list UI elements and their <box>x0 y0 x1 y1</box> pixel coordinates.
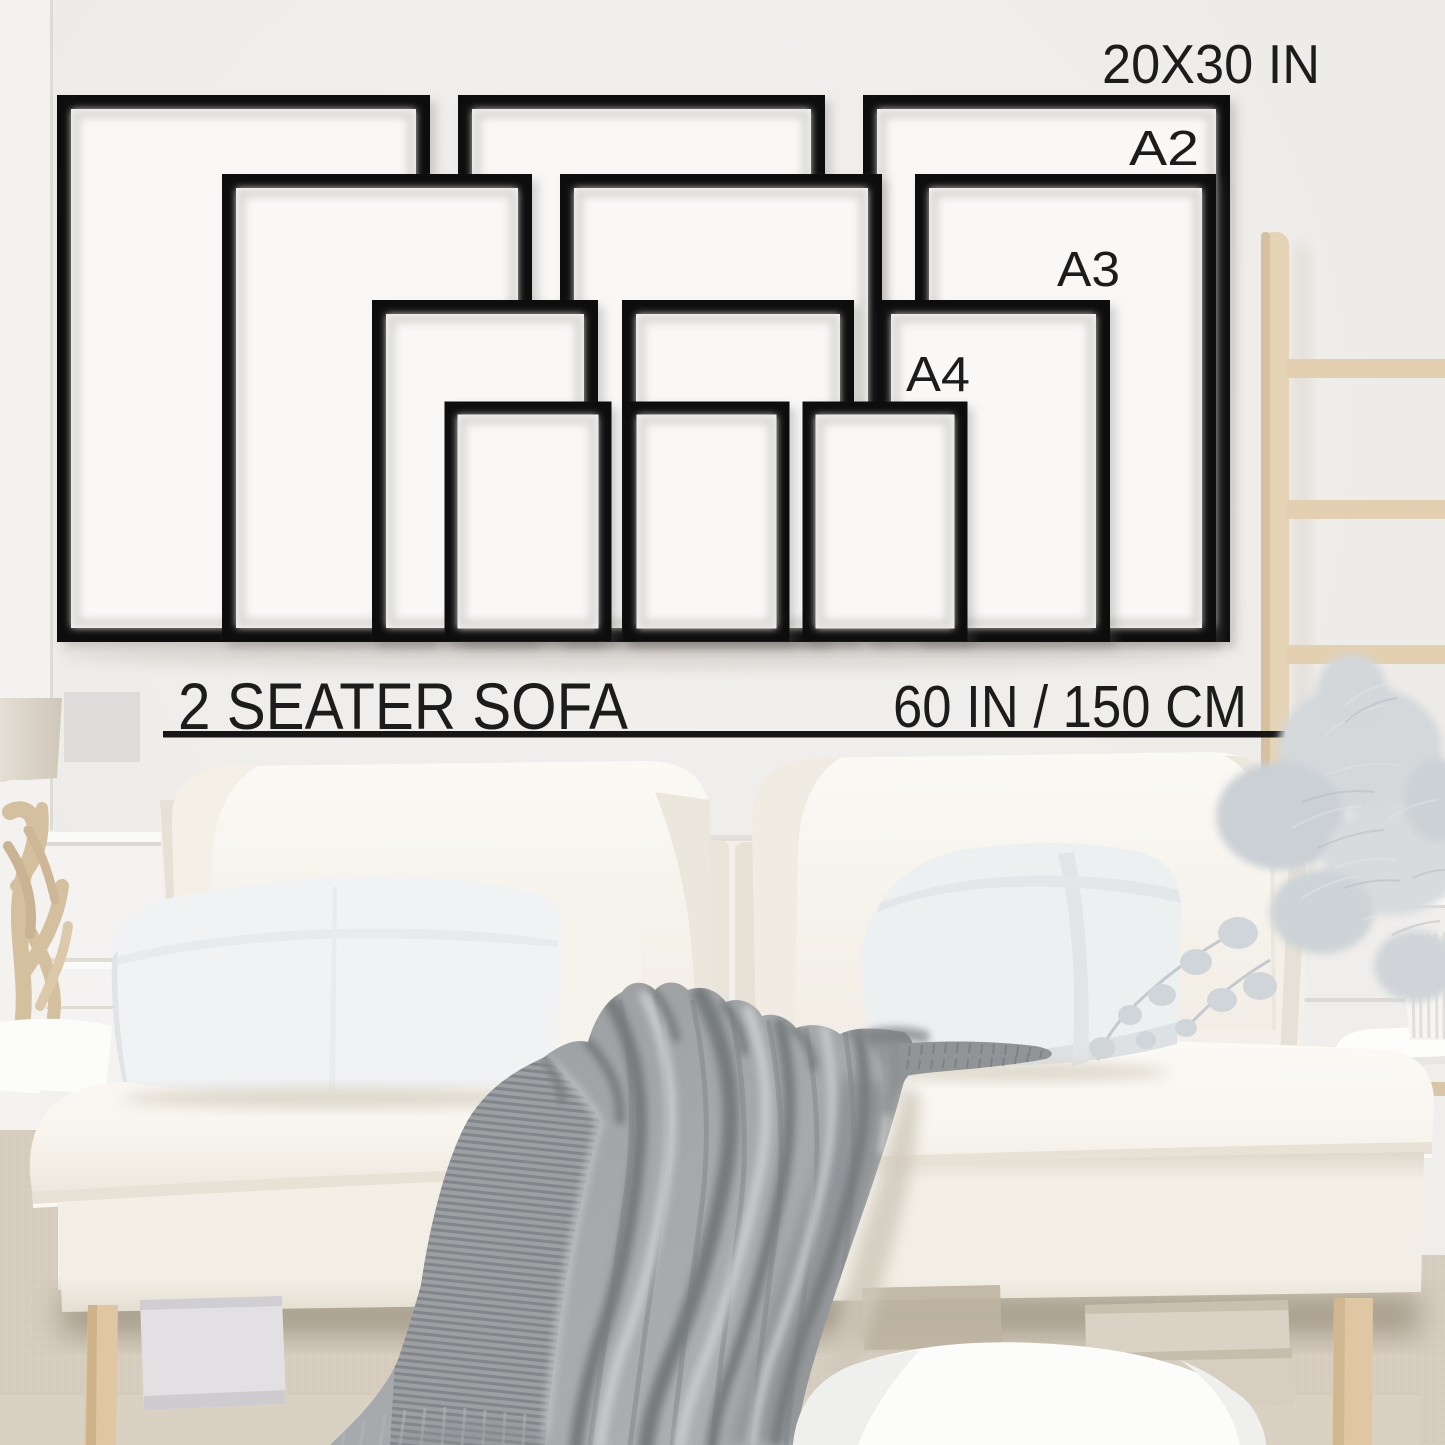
svg-text:A4: A4 <box>906 348 970 402</box>
svg-text:A3: A3 <box>1057 243 1120 297</box>
svg-text:60 IN / 150 CM: 60 IN / 150 CM <box>893 674 1247 740</box>
svg-text:A2: A2 <box>1129 122 1199 176</box>
svg-text:20X30 IN: 20X30 IN <box>1102 33 1320 95</box>
